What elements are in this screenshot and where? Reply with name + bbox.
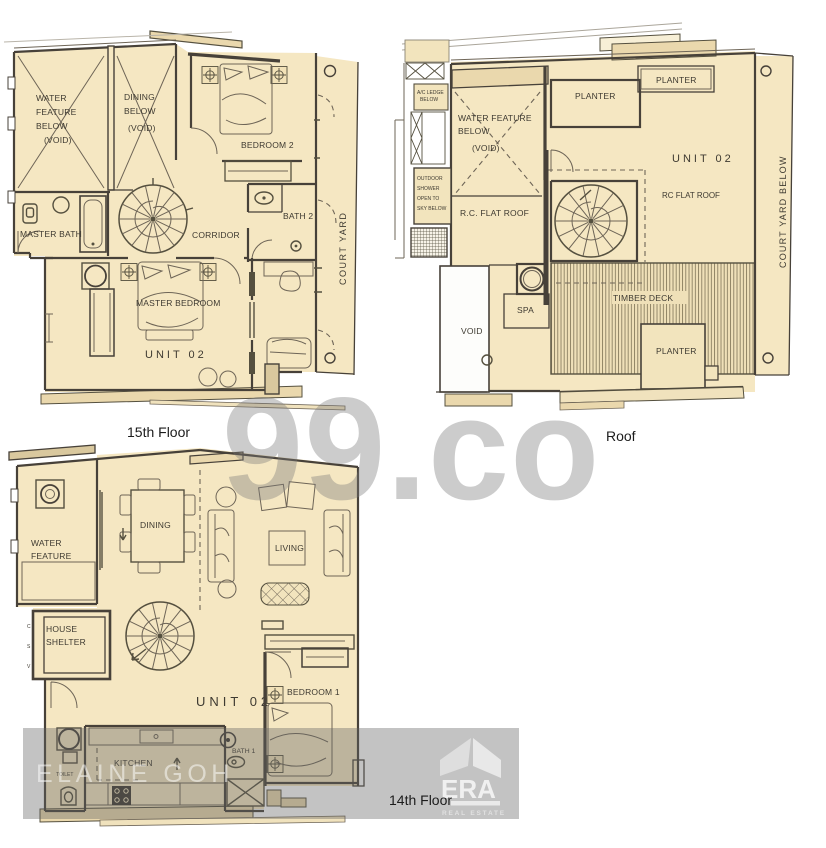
svg-text:C: C (27, 624, 31, 630)
svg-text:99.co: 99.co (222, 367, 600, 530)
svg-text:A/C LEDGE: A/C LEDGE (417, 90, 444, 96)
svg-text:FEATURE: FEATURE (31, 551, 72, 561)
svg-text:SPA: SPA (517, 305, 534, 315)
svg-text:CORRIDOR: CORRIDOR (192, 230, 240, 240)
svg-text:OPEN TO: OPEN TO (417, 196, 439, 202)
svg-text:VOID: VOID (461, 326, 483, 336)
svg-text:BELOW: BELOW (36, 121, 68, 131)
svg-text:COURT YARD BELOW: COURT YARD BELOW (778, 155, 788, 268)
svg-text:14th Floor: 14th Floor (389, 792, 452, 808)
svg-text:UNIT 02: UNIT 02 (672, 153, 734, 165)
svg-text:MASTER BATH: MASTER BATH (20, 229, 82, 239)
svg-text:FEATURE: FEATURE (36, 107, 77, 117)
svg-text:ELAINE GOH: ELAINE GOH (36, 760, 234, 788)
svg-text:WATER FEATURE: WATER FEATURE (458, 113, 532, 123)
svg-text:(VOID): (VOID) (128, 123, 156, 133)
svg-text:BATH 2: BATH 2 (283, 211, 313, 221)
svg-text:(VOID): (VOID) (472, 143, 500, 153)
svg-text:PLANTER: PLANTER (656, 346, 697, 356)
svg-text:Roof: Roof (606, 428, 636, 444)
svg-text:(VOID): (VOID) (44, 135, 72, 145)
svg-text:MASTER BEDROOM: MASTER BEDROOM (136, 298, 221, 308)
svg-text:OUTDOOR: OUTDOOR (417, 176, 443, 182)
svg-text:BEDROOM 1: BEDROOM 1 (287, 687, 340, 697)
svg-text:COURT YARD: COURT YARD (338, 212, 348, 285)
svg-text:RC FLAT ROOF: RC FLAT ROOF (662, 191, 720, 200)
svg-text:REAL ESTATE: REAL ESTATE (442, 810, 506, 817)
svg-text:BEDROOM 2: BEDROOM 2 (241, 140, 294, 150)
svg-text:PLANTER: PLANTER (575, 91, 616, 101)
svg-text:DINING: DINING (140, 520, 171, 530)
svg-text:LIVING: LIVING (275, 543, 304, 553)
svg-text:HOUSE: HOUSE (46, 624, 77, 634)
svg-text:15th Floor: 15th Floor (127, 424, 190, 440)
svg-text:BELOW: BELOW (124, 106, 156, 116)
svg-text:BELOW: BELOW (420, 97, 438, 103)
svg-text:SKY BELOW: SKY BELOW (417, 206, 447, 212)
svg-text:DINING: DINING (124, 92, 155, 102)
svg-text:R.C. FLAT ROOF: R.C. FLAT ROOF (460, 208, 529, 218)
svg-text:SHELTER: SHELTER (46, 637, 86, 647)
svg-text:BELOW: BELOW (458, 126, 490, 136)
svg-text:WATER: WATER (31, 538, 62, 548)
svg-text:WATER: WATER (36, 93, 67, 103)
svg-text:TIMBER DECK: TIMBER DECK (613, 293, 673, 303)
svg-text:SHOWER: SHOWER (417, 186, 440, 192)
svg-text:UNIT 02: UNIT 02 (196, 694, 272, 709)
svg-text:PLANTER: PLANTER (656, 75, 697, 85)
svg-text:UNIT 02: UNIT 02 (145, 349, 207, 361)
